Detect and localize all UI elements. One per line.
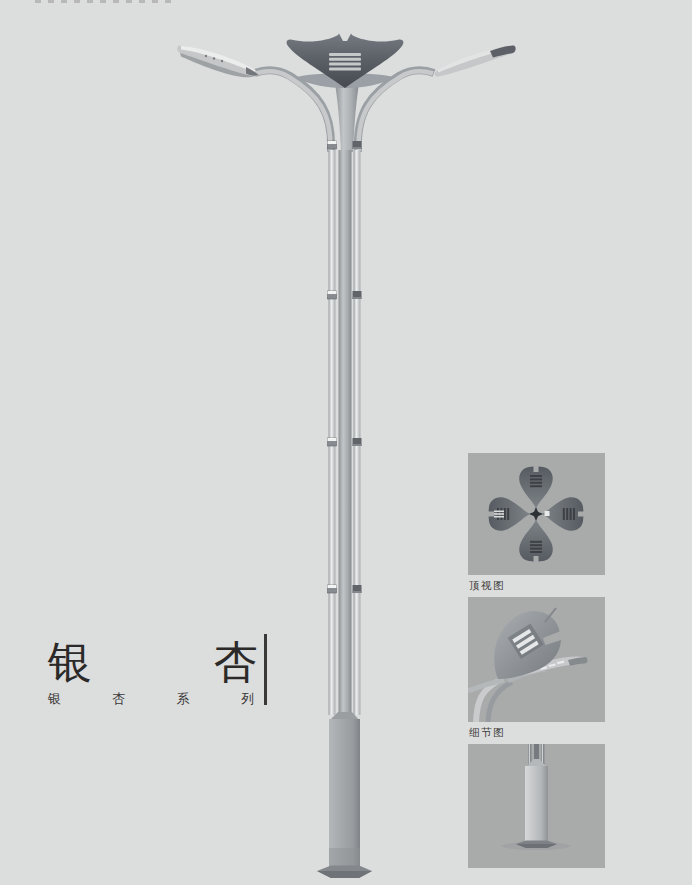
base-view-image bbox=[468, 744, 605, 868]
product-title: 银 杏 bbox=[48, 640, 258, 684]
series-label-char: 银 bbox=[48, 692, 61, 705]
detail-panel-top-view: 顶视图 bbox=[468, 453, 605, 592]
title-divider-line bbox=[264, 634, 267, 705]
panel-caption: 顶视图 bbox=[469, 579, 605, 592]
base-view-column bbox=[525, 759, 548, 844]
pole-base-column bbox=[329, 712, 360, 867]
series-label-char: 杏 bbox=[112, 692, 125, 705]
detail-view-image bbox=[468, 597, 605, 722]
pole-base-plate bbox=[317, 866, 372, 879]
series-label-char: 系 bbox=[177, 692, 190, 705]
panel-caption bbox=[469, 872, 605, 885]
lamp-pole bbox=[329, 150, 361, 717]
catalog-page: 顶视图 bbox=[0, 0, 692, 885]
product-title-char: 银 bbox=[48, 640, 92, 684]
detail-panel-base-view bbox=[468, 744, 605, 885]
title-block: 银 杏 银 杏 系 列 bbox=[48, 640, 258, 705]
top-view-highlight-slats bbox=[494, 511, 504, 518]
series-label: 银 杏 系 列 bbox=[48, 692, 254, 705]
detail-panel-detail-view: 细节图 bbox=[468, 597, 605, 739]
lamp-head-right bbox=[435, 45, 516, 76]
product-title-char: 杏 bbox=[214, 640, 258, 684]
lamp-head-left bbox=[177, 45, 258, 77]
panel-caption: 细节图 bbox=[469, 726, 605, 739]
top-view-image bbox=[468, 453, 605, 575]
series-label-char: 列 bbox=[241, 692, 254, 705]
detail-panels: 顶视图 bbox=[468, 453, 605, 885]
